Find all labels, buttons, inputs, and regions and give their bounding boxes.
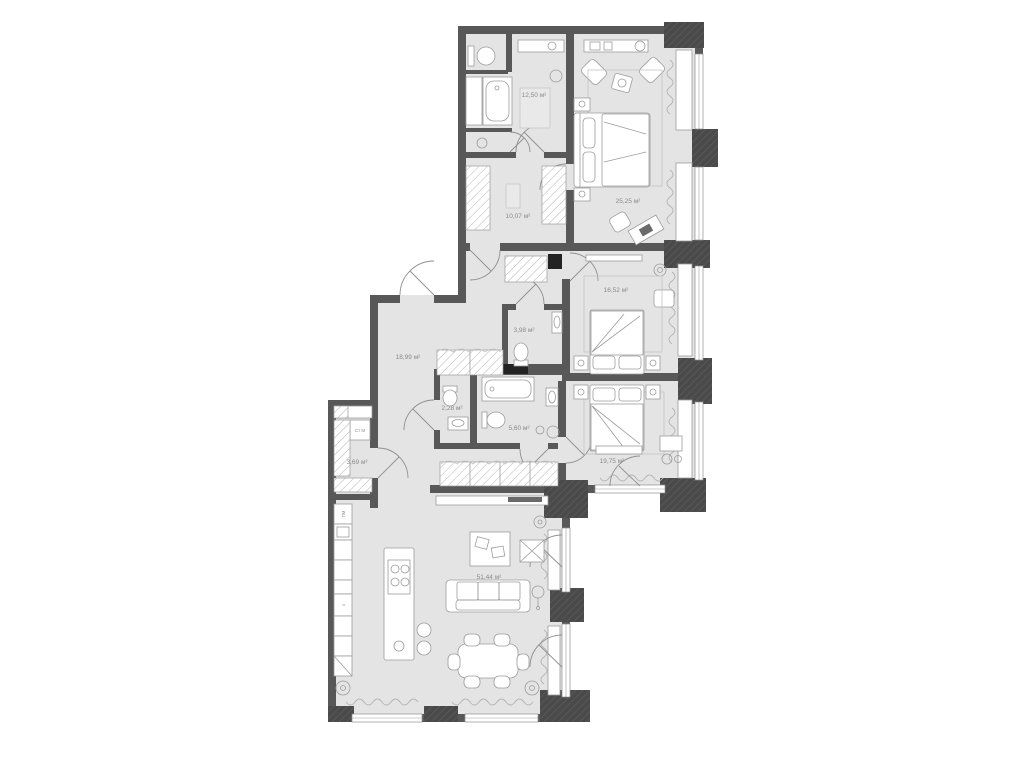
armchair <box>654 290 674 307</box>
bath-shelf <box>466 77 482 125</box>
shelf <box>334 478 372 492</box>
toilet-tank <box>468 46 474 66</box>
desk <box>660 436 682 451</box>
closet-row <box>440 462 558 486</box>
label-wardrobe: 10,07 м² <box>506 213 532 220</box>
column <box>664 22 704 48</box>
pillow <box>583 152 595 182</box>
nightstand <box>646 356 660 370</box>
column <box>328 706 354 722</box>
toilet <box>514 343 528 361</box>
kitchen-counter <box>334 504 352 676</box>
label-laundry-closet: 3,69 м² <box>346 459 368 466</box>
pillow <box>619 356 641 369</box>
column <box>424 706 458 722</box>
window-sill <box>678 264 692 356</box>
blanket <box>602 114 649 186</box>
toilet-tank <box>482 412 487 428</box>
label-bedroom-middle: 16,52 м² <box>604 287 630 294</box>
bar-stool <box>417 623 431 637</box>
chair <box>494 676 510 688</box>
cabinet <box>334 636 352 656</box>
lower-corridor <box>440 461 558 486</box>
console <box>596 446 642 454</box>
tv <box>508 497 542 502</box>
chair <box>464 676 480 688</box>
bar-stool <box>417 641 431 655</box>
column <box>550 588 584 622</box>
toilet <box>487 412 505 428</box>
closet <box>505 256 547 282</box>
closet <box>466 166 490 230</box>
label-living-kitchen: 51,44 м² <box>477 574 503 581</box>
chair <box>448 654 460 670</box>
rug <box>506 184 520 208</box>
window-sill <box>676 163 692 241</box>
pillow <box>593 356 615 369</box>
window-sill <box>548 530 560 590</box>
column <box>660 478 706 512</box>
label-washing-machine: Ст М <box>355 428 365 433</box>
label-master-bedroom: 25,25 м² <box>616 198 642 205</box>
closet <box>334 420 350 476</box>
column <box>692 129 718 167</box>
label-dishwasher: ПМ <box>341 510 346 517</box>
sink <box>552 312 562 333</box>
toilet <box>477 47 495 65</box>
label-bathroom-second: 5,60 м² <box>508 425 530 432</box>
pillow <box>619 388 641 401</box>
room-hallway <box>437 349 503 375</box>
nightstand <box>574 188 590 201</box>
label-bedroom-lower: 19,75 м² <box>600 458 626 465</box>
label-hallway: 18,99 м² <box>396 354 422 361</box>
label-bathroom-main: 12,50 м² <box>522 92 548 99</box>
cabinet <box>334 616 352 636</box>
sink <box>448 417 468 430</box>
entrance-door <box>400 261 434 303</box>
floor-plan-page: 12,50 м² 25,25 м² 10,07 м² 16,52 м² 3,98… <box>0 0 1024 768</box>
cabinet <box>334 580 352 594</box>
cabinet <box>334 560 352 580</box>
nightstand <box>646 385 660 399</box>
toilet <box>443 390 457 406</box>
sofa <box>446 580 530 612</box>
pillow <box>593 388 615 401</box>
upper-corridor <box>505 256 547 282</box>
vanity-counter <box>518 40 564 52</box>
closet <box>542 166 566 224</box>
column <box>678 358 712 404</box>
nightstand <box>574 356 588 370</box>
tv-console <box>586 255 642 261</box>
label-wc-guest: 2,28 м² <box>441 405 463 412</box>
nightstand <box>574 98 590 111</box>
coffee-table <box>470 532 510 566</box>
pillow <box>583 118 595 148</box>
window-sill <box>676 50 692 130</box>
floor-plan-svg: 12,50 м² 25,25 м² 10,07 м² 16,52 м² 3,98… <box>0 0 1024 768</box>
nightstand <box>574 385 588 399</box>
cabinet <box>334 540 352 560</box>
chair <box>494 634 510 646</box>
tv-cabinet <box>520 540 544 562</box>
chair <box>517 654 529 670</box>
label-wc-small: 3,98 м² <box>513 327 535 334</box>
chair <box>464 634 480 646</box>
